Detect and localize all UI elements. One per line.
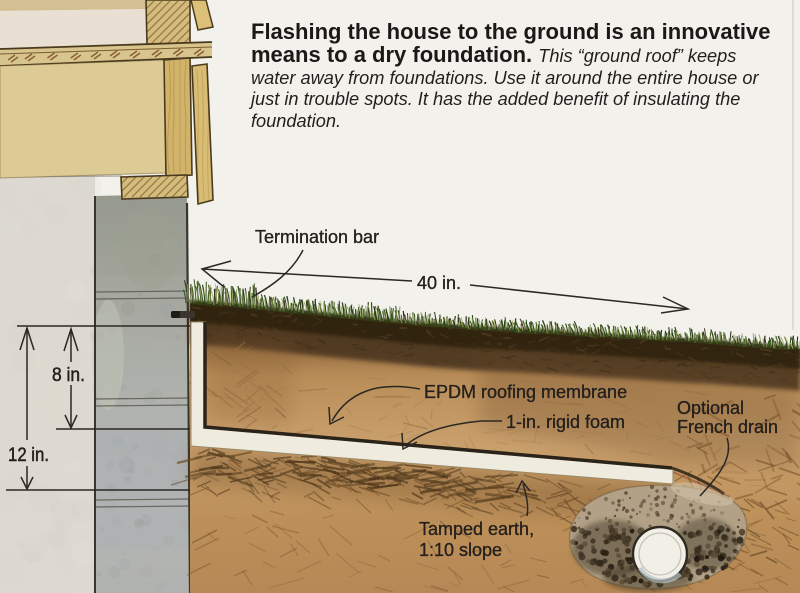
svg-text:EPDM roofing membrane: EPDM roofing membrane bbox=[424, 382, 627, 402]
svg-text:8 in.: 8 in. bbox=[52, 365, 85, 386]
svg-text:Termination bar: Termination bar bbox=[255, 227, 379, 247]
svg-text:1-in. rigid foam: 1-in. rigid foam bbox=[506, 412, 625, 432]
svg-text:French drain: French drain bbox=[677, 417, 778, 437]
svg-text:12 in.: 12 in. bbox=[8, 445, 49, 466]
svg-text:Tamped earth,: Tamped earth, bbox=[419, 519, 534, 539]
svg-text:40 in.: 40 in. bbox=[417, 273, 461, 293]
svg-text:Optional: Optional bbox=[677, 398, 744, 418]
svg-text:1:10 slope: 1:10 slope bbox=[419, 540, 502, 560]
